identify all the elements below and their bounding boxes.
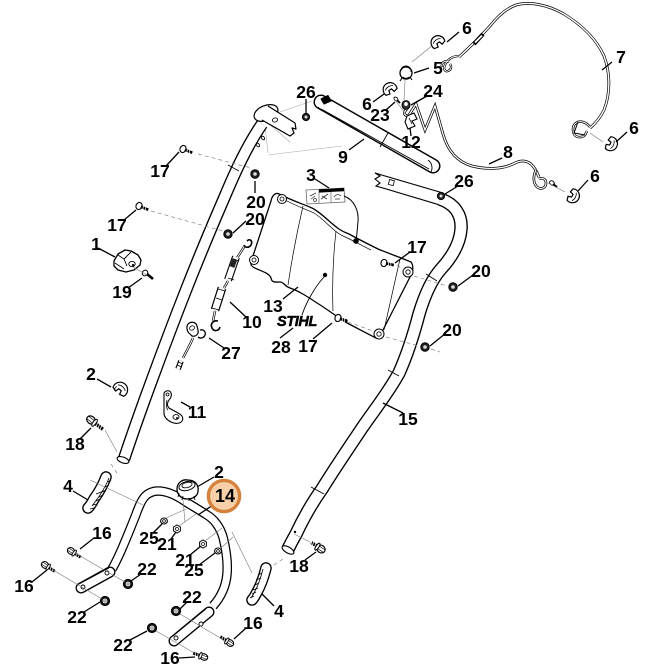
svg-text:5: 5 (433, 58, 443, 78)
svg-text:25: 25 (184, 560, 204, 580)
svg-text:14: 14 (215, 486, 235, 506)
svg-text:2: 2 (86, 364, 96, 384)
svg-text:1: 1 (91, 234, 101, 254)
svg-text:22: 22 (113, 635, 133, 655)
svg-text:4: 4 (63, 476, 73, 496)
svg-text:18: 18 (289, 556, 309, 576)
svg-text:22: 22 (67, 607, 87, 627)
svg-text:6: 6 (629, 118, 639, 138)
svg-text:11: 11 (188, 402, 207, 422)
svg-text:4: 4 (274, 601, 284, 621)
svg-text:17: 17 (150, 161, 169, 181)
svg-text:16: 16 (243, 613, 263, 633)
svg-text:6: 6 (590, 166, 600, 186)
svg-text:9: 9 (338, 147, 348, 167)
svg-text:20: 20 (471, 261, 491, 281)
svg-text:26: 26 (296, 82, 316, 102)
svg-text:27: 27 (221, 343, 240, 363)
svg-text:28: 28 (271, 337, 291, 357)
svg-text:22: 22 (137, 559, 157, 579)
svg-text:8: 8 (503, 142, 513, 162)
svg-text:21: 21 (157, 534, 177, 554)
svg-text:3: 3 (306, 165, 316, 185)
svg-text:17: 17 (298, 336, 317, 356)
svg-text:24: 24 (423, 81, 443, 101)
svg-text:12: 12 (401, 132, 421, 152)
svg-text:13: 13 (263, 296, 283, 316)
svg-text:10: 10 (242, 312, 262, 332)
svg-text:16: 16 (14, 576, 34, 596)
svg-text:2: 2 (214, 462, 224, 482)
svg-text:22: 22 (182, 587, 202, 607)
svg-text:6: 6 (462, 18, 472, 38)
svg-text:7: 7 (616, 47, 626, 67)
svg-text:16: 16 (92, 523, 112, 543)
svg-text:23: 23 (370, 105, 390, 125)
svg-text:16: 16 (160, 648, 180, 665)
svg-text:STIHL: STIHL (277, 314, 317, 330)
svg-text:17: 17 (407, 237, 426, 257)
svg-text:25: 25 (139, 528, 159, 548)
svg-text:17: 17 (107, 215, 126, 235)
svg-text:19: 19 (112, 282, 132, 302)
svg-text:26: 26 (454, 171, 474, 191)
svg-text:15: 15 (398, 409, 418, 429)
svg-text:20: 20 (442, 320, 462, 340)
svg-text:18: 18 (65, 434, 85, 454)
svg-text:20: 20 (245, 209, 265, 229)
